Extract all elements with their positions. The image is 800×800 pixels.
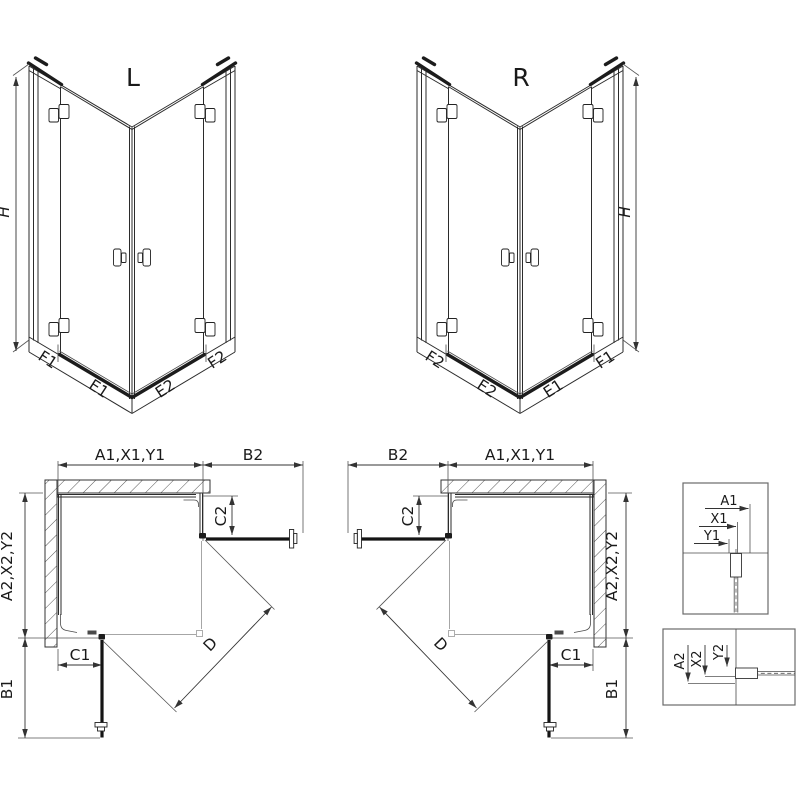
enclosure-3d-left [29,58,236,414]
dim-label-width-right-plan: A1,X1,Y1 [485,446,555,464]
detail-label-a1: A1 [720,494,737,509]
dim-label-width-left-plan: A1,X1,Y1 [95,446,165,464]
dim-label-c2-left-plan: C2 [212,506,230,527]
dim-label-b2-left-plan: B2 [243,446,264,464]
dim-label-b1-right-plan: B1 [603,679,621,700]
height-label-right: H [616,206,634,217]
detail-label-x2: X2 [690,650,705,667]
technical-drawing-page: L H F1 E1 E2 F2 R H F2 E2 E1 F1 A1,X1,Y1… [0,0,800,800]
wall-side-left-plan [45,480,57,647]
plan-linework-right [348,461,633,738]
dim-label-f2-left: F2 [204,347,230,372]
dim-label-c2-right-plan: C2 [399,506,417,527]
plan-view-right: B2 A1,X1,Y1 C2 A2,X2,Y2 C1 B1 D [348,446,633,738]
front-view-left: L H F1 E1 E2 F2 [0,58,236,414]
detail-label-x1: X1 [710,512,727,527]
detail-label-y2: Y2 [712,644,727,661]
detail-label-a2: A2 [673,652,688,669]
front-view-right: R H F2 E2 E1 F1 [417,58,640,414]
shower-enclosure-diagram: L H F1 E1 E2 F2 R H F2 E2 E1 F1 A1,X1,Y1… [0,0,800,800]
dim-label-c1-right-plan: C1 [561,646,582,664]
enclosure-3d-right [417,58,624,414]
variant-label-left: L [126,63,140,92]
wall-top-right-plan [441,480,606,493]
height-label-left: H [0,206,13,217]
detail-inset-bottom: A2 X2 Y2 [663,629,795,705]
height-dimension-left [13,64,29,352]
detail-label-y1: Y1 [703,529,720,544]
detail-inset-top: A1 X1 Y1 [683,483,768,614]
dim-label-d-left-plan: D [200,634,221,655]
dim-label-b1-left-plan: B1 [0,679,16,700]
dim-label-f1-right: F1 [592,347,618,372]
variant-label-right: R [512,63,529,92]
plan-linework-left [18,461,303,738]
dim-label-d-right-plan: D [430,634,451,655]
dim-label-b2-right-plan: B2 [388,446,409,464]
dim-label-depth-right-plan: A2,X2,Y2 [603,531,621,601]
dim-label-c1-left-plan: C1 [70,646,91,664]
wall-top-left-plan [45,480,210,493]
dim-label-f2-right: F2 [422,347,448,372]
dim-label-depth-left-plan: A2,X2,Y2 [0,531,16,601]
plan-view-left: A1,X1,Y1 B2 C2 A2,X2,Y2 C1 B1 D [0,446,303,738]
